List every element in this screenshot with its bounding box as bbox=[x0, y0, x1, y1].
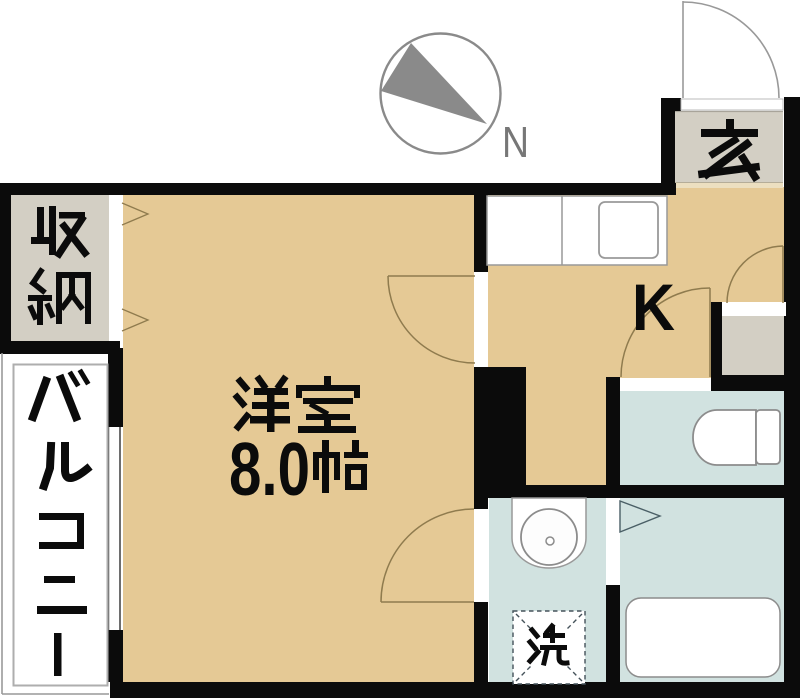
svg-text:K: K bbox=[632, 270, 675, 344]
svg-text:8.0: 8.0 bbox=[229, 427, 310, 511]
svg-text:N: N bbox=[502, 118, 529, 167]
